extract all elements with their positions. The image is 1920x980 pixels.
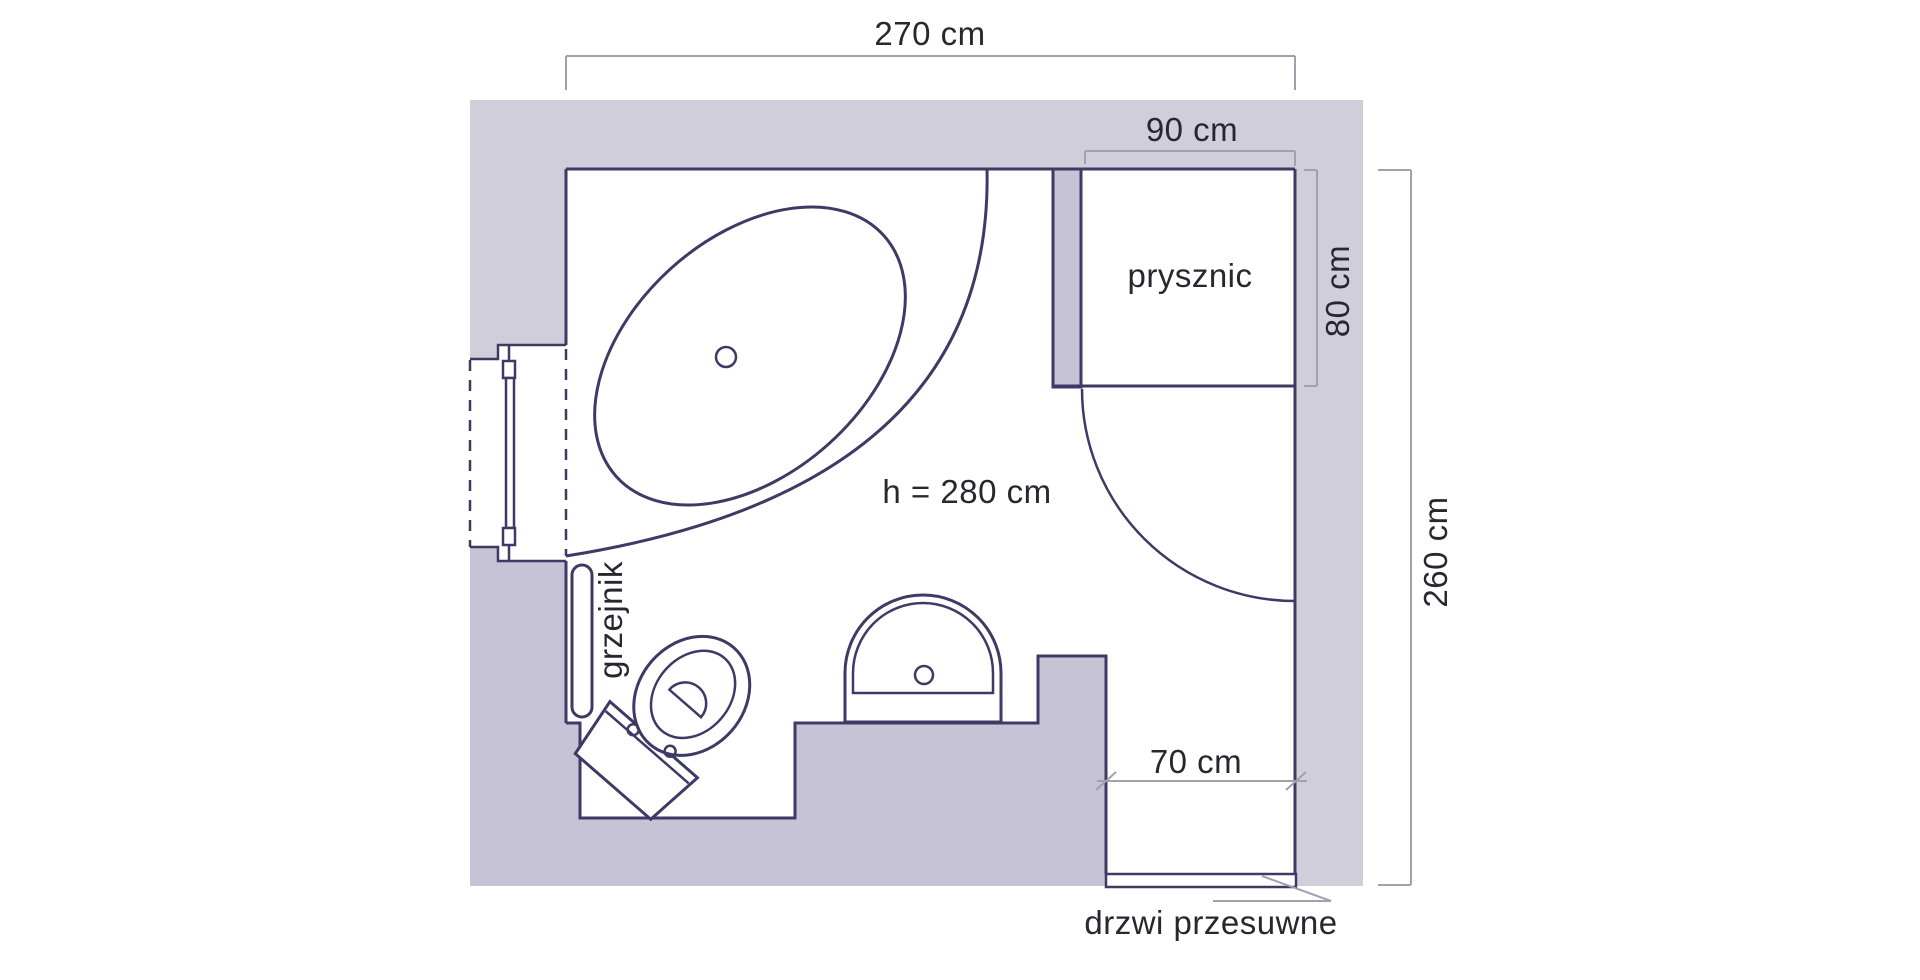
wall-left-upper [470,169,566,359]
sliding-door-panel [1106,874,1296,887]
washbasin-outer [845,595,1001,722]
sliding-door-label: drzwi przesuwne [1084,904,1337,942]
dim-door-width-label: 70 cm [1150,743,1242,781]
washbasin [845,595,1001,722]
dim-shower-depth-label: 80 cm [1319,245,1357,337]
window-glazing [506,378,514,528]
radiator-label: grzejnik [592,561,630,679]
dim-270-bracket [566,56,1295,90]
wall-shower-stub [1053,169,1081,387]
ceiling-height-label: h = 280 cm [882,473,1051,511]
radiator [572,565,592,717]
window-frame-block-bottom [503,528,515,545]
window [470,345,566,561]
shower-label: prysznic [1127,257,1252,295]
shower-door-arc [1082,389,1295,601]
dim-260-bracket [1378,170,1411,885]
window-frame-block-top [503,361,515,378]
dim-shower-width-label: 90 cm [1146,111,1238,149]
dim-room-width-label: 270 cm [874,15,985,53]
bathroom-floor-plan: 270 cm 90 cm 80 cm 260 cm 70 cm h = 280 … [0,0,1920,980]
bathtub-drain-icon [716,347,736,367]
dim-room-depth-label: 260 cm [1417,496,1455,607]
